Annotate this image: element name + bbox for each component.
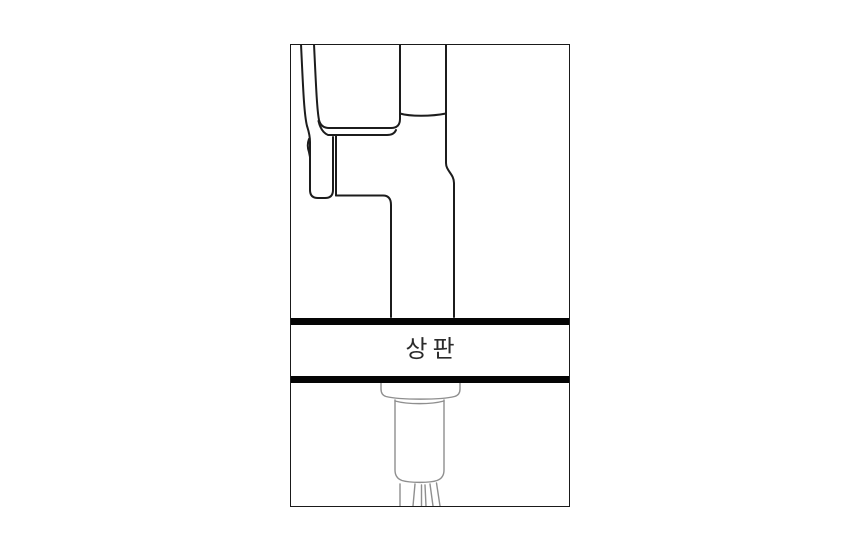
hose-line <box>430 484 433 506</box>
hose-line <box>437 483 441 506</box>
mounting-shank-outline <box>395 400 444 482</box>
body-column-joint-line <box>400 114 446 116</box>
countertop-slab-bottom-bar <box>290 376 570 383</box>
faucet-body-outline <box>314 44 400 128</box>
hose-line <box>413 484 415 506</box>
mounting-shank-top-rim <box>395 401 444 404</box>
faucet-line-art <box>290 44 570 507</box>
countertop-slab-top-bar <box>290 318 570 325</box>
page-canvas: 상판 <box>0 0 860 552</box>
neck-left-edge <box>336 196 391 318</box>
countertop-label-text: 상판 <box>400 329 459 364</box>
sprayer-wand-outline <box>301 44 333 198</box>
faucet-above-counter <box>301 44 454 317</box>
diagram-box: 상판 <box>290 44 570 507</box>
countertop-label: 상판 <box>291 326 569 376</box>
hose-line <box>425 485 426 506</box>
spout-riser-edge <box>446 44 454 317</box>
faucet-below-counter <box>381 380 460 506</box>
supply-hoses <box>400 483 440 506</box>
neck-top-line <box>336 130 396 135</box>
